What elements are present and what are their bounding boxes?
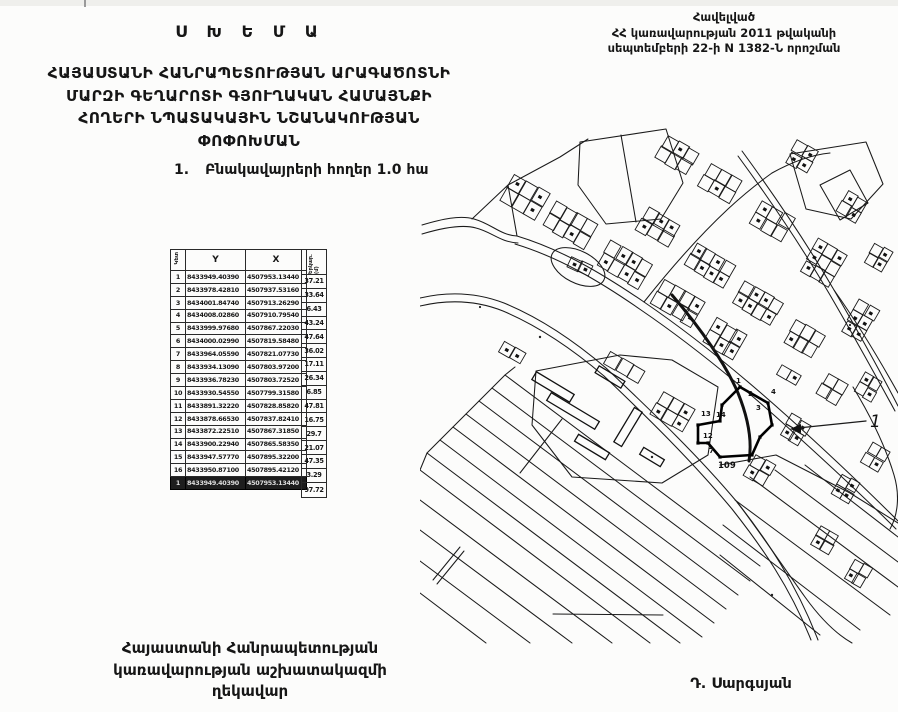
cell-cy: 8433930.54550: [186, 387, 246, 400]
cell-cn: 7: [171, 348, 186, 361]
cell-cn: 6: [171, 335, 186, 348]
table-row: 58433999.976804507867.22030: [171, 322, 307, 335]
cadastral-map: 12341413127 109 1: [420, 125, 898, 645]
scan-artifact-tick: [84, 0, 86, 7]
point-number-label: 3: [756, 404, 761, 412]
table-row: 128433878.665304507837.82410: [171, 412, 307, 425]
header-x: X: [246, 250, 307, 271]
cell-cx: 4507953.13440: [246, 477, 307, 490]
cell-length: 33.64: [302, 289, 326, 303]
cell-length: 47.35: [302, 455, 326, 469]
cell-cy: 8434001.84740: [186, 296, 246, 309]
cell-cy: 8433872.22510: [186, 425, 246, 438]
cell-cx: 4507865.58350: [246, 438, 307, 451]
table-row: 98433936.782304507803.72520: [171, 374, 307, 387]
cell-length: 3.29: [302, 469, 326, 483]
cell-cy: 8433978.42810: [186, 283, 246, 296]
cell-length: 21.07: [302, 441, 326, 455]
heading-line: ՄԱՐԶԻ ԳԵՂԱՐՈՏԻ ԳՅՈՒՂԱԿԱՆ ՀԱՄԱՅՆՔԻ: [14, 85, 484, 108]
cell-cy: 8433947.57770: [186, 451, 246, 464]
appendix-note: Հավելված ՀՀ կառավարության 2011 թվականի ս…: [556, 10, 892, 57]
page-title: Ս Խ Ե Մ Ա: [0, 22, 500, 41]
cell-cn: 3: [171, 296, 186, 309]
cell-length: 6.43: [302, 303, 326, 317]
point-number-label: 14: [716, 411, 726, 419]
signature-name: Դ. Սարգսյան: [636, 676, 846, 692]
map-large-parcels: [532, 129, 883, 483]
map-farm-buildings: [532, 366, 665, 467]
point-number-label: 7: [709, 447, 714, 455]
cell-length: 16.75: [302, 413, 326, 427]
table-row: 28433978.428104507937.53160: [171, 283, 307, 296]
cell-cx: 4507937.53160: [246, 283, 307, 296]
cell-cy: 8433950.87100: [186, 464, 246, 477]
cell-cn: 9: [171, 374, 186, 387]
table-row: 118433891.322204507828.85820: [171, 399, 307, 412]
cell-cx: 4507895.42120: [246, 464, 307, 477]
cell-cx: 4507867.31850: [246, 425, 307, 438]
cell-length: 36.02: [302, 344, 326, 358]
cell-cx: 4507895.32200: [246, 451, 307, 464]
cell-cn: 8: [171, 361, 186, 374]
cell-length: 6.85: [302, 386, 326, 400]
cell-cy: 8433999.97680: [186, 322, 246, 335]
document-heading: ՀԱՅԱՍՏԱՆԻ ՀԱՆՐԱՊԵՏՈՒԹՅԱՆ ԱՐԱԳԱԾՈՏՆԻ ՄԱՐԶ…: [14, 62, 484, 152]
point-number-label: 4: [771, 388, 776, 396]
length-column: Երկար. (մ) 37.2133.646.4343.2447.6436.02…: [301, 249, 327, 498]
scan-artifact-band: [0, 0, 898, 6]
point-number-label: 12: [703, 432, 713, 440]
cell-cn: 1: [171, 477, 186, 490]
cell-cy: 8433949.40390: [186, 477, 246, 490]
cell-cx: 4507828.85820: [246, 399, 307, 412]
heading-line: ՀԱՅԱՍՏԱՆԻ ՀԱՆՐԱՊԵՏՈՒԹՅԱՆ ԱՐԱԳԱԾՈՏՆԻ: [14, 62, 484, 85]
scanned-document-page: Հավելված ՀՀ կառավարության 2011 թվականի ս…: [0, 0, 898, 712]
cell-cx: 4507803.72520: [246, 374, 307, 387]
point-number-label: 2: [748, 390, 753, 398]
signatory-line: ղեկավար: [92, 681, 408, 703]
cell-cy: 8433964.05590: [186, 348, 246, 361]
cell-cx: 4507953.13440: [246, 271, 307, 284]
cell-cy: 8433936.78230: [186, 374, 246, 387]
point-number-label: 13: [701, 410, 711, 418]
cell-cn: 10: [171, 387, 186, 400]
map-field-strips-right: [720, 455, 898, 635]
cell-cy: 8433900.22940: [186, 438, 246, 451]
table-row: 88433934.130904507803.97200: [171, 361, 307, 374]
cell-length: 26.34: [302, 372, 326, 386]
map-field-strips: [420, 367, 760, 643]
table-row: 78433964.055904507821.07730: [171, 348, 307, 361]
cell-cy: 8433878.66530: [186, 412, 246, 425]
header-y: Y: [186, 250, 246, 271]
cell-cn: 1: [171, 271, 186, 284]
table-row: 18433949.403904507953.13440: [171, 271, 307, 284]
table-row: 148433900.229404507865.58350: [171, 438, 307, 451]
cell-cy: 8434000.02990: [186, 335, 246, 348]
cell-cx: 4507821.07730: [246, 348, 307, 361]
parcel-area-label: 109: [718, 461, 736, 471]
item-text: Բնակավայրերի հողեր 1.0 հա: [205, 162, 428, 178]
table-row: 48434008.028604507910.79540: [171, 309, 307, 322]
cell-cn: 11: [171, 399, 186, 412]
heading-line: ՓՈՓՈԽՄԱՆ: [14, 130, 484, 153]
cell-cn: 14: [171, 438, 186, 451]
cell-length: 97.72: [302, 483, 326, 497]
cell-cx: 4507803.97200: [246, 361, 307, 374]
cell-cn: 4: [171, 309, 186, 322]
map-village-parcels: [499, 136, 894, 588]
cell-cx: 4507799.31580: [246, 387, 307, 400]
cell-length: 43.24: [302, 317, 326, 331]
signatory-line: կառավարության աշխատակազմի: [92, 660, 408, 682]
cell-cn: 2: [171, 283, 186, 296]
table-row: 138433872.225104507867.31850: [171, 425, 307, 438]
cell-cx: 4507910.79540: [246, 309, 307, 322]
cell-cx: 4507913.26290: [246, 296, 307, 309]
map-house-marks: [504, 147, 887, 577]
cell-length: 29.7: [302, 427, 326, 441]
header-length: Երկար. (մ): [302, 250, 326, 275]
cell-length: 47.81: [302, 400, 326, 414]
table-row: 158433947.577704507895.32200: [171, 451, 307, 464]
parcel-callout: 1: [790, 412, 881, 433]
appendix-line: ՀՀ կառավարության 2011 թվականի: [556, 26, 892, 42]
cell-cx: 4507819.58480: [246, 335, 307, 348]
cell-length: 17.11: [302, 358, 326, 372]
signatory-title: Հայաստանի Հանրապետության կառավարության ա…: [92, 638, 408, 703]
table-row: 18433949.403904507953.13440: [171, 477, 307, 490]
table-row: 108433930.545504507799.31580: [171, 387, 307, 400]
cell-length: 47.64: [302, 330, 326, 344]
signatory-line: Հայաստանի Հանրապետության: [92, 638, 408, 660]
callout-number: 1: [870, 412, 881, 432]
point-number-label: 1: [736, 377, 741, 385]
table-row: 68434000.029904507819.58480: [171, 335, 307, 348]
cell-cn: 15: [171, 451, 186, 464]
header-point: Կետ: [171, 250, 186, 271]
table-row: 38434001.847404507913.26290: [171, 296, 307, 309]
item-number: 1.: [174, 162, 189, 178]
appendix-line: սեպտեմբերի 22-ի N 1382-Ն որոշման: [556, 41, 892, 57]
cell-cy: 8433949.40390: [186, 271, 246, 284]
land-category-item: 1.Բնակավայրերի հողեր 1.0 հա: [174, 162, 429, 178]
table-header-row: Կետ Y X: [171, 250, 307, 271]
cell-cy: 8434008.02860: [186, 309, 246, 322]
table-row: 168433950.871004507895.42120: [171, 464, 307, 477]
arrowhead-icon: [790, 424, 801, 433]
cell-cn: 5: [171, 322, 186, 335]
cell-length: 37.21: [302, 275, 326, 289]
cell-cy: 8433934.13090: [186, 361, 246, 374]
heading-line: ՀՈՂԵՐԻ ՆՊԱՏԱԿԱՅԻՆ ՆՇԱՆԱԿՈՒԹՅԱՆ: [14, 107, 484, 130]
cell-cn: 16: [171, 464, 186, 477]
cell-cn: 13: [171, 425, 186, 438]
appendix-line: Հավելված: [556, 10, 892, 26]
cell-cy: 8433891.32220: [186, 399, 246, 412]
cell-cx: 4507837.82410: [246, 412, 307, 425]
cell-cn: 12: [171, 412, 186, 425]
coordinates-table: Կետ Y X 18433949.403904507953.1344028433…: [170, 249, 307, 490]
cell-cx: 4507867.22030: [246, 322, 307, 335]
